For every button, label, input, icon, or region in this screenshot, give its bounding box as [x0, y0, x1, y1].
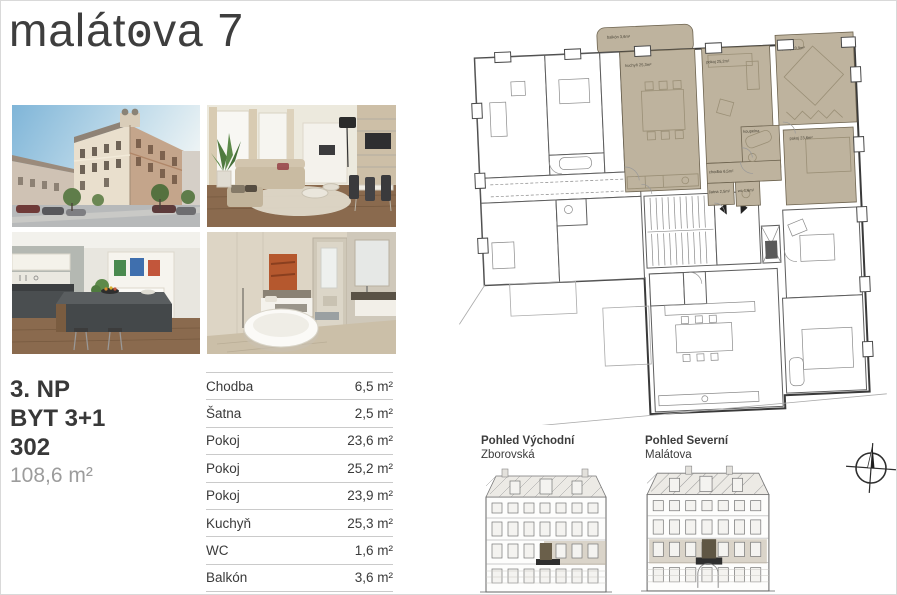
- floor-plan-drawing: balkón 3,6m²: [447, 5, 897, 425]
- photo-kitchen: [12, 232, 200, 354]
- bath-mat: [315, 312, 339, 320]
- living-room-illustration: [207, 105, 396, 227]
- unit-area: 108,6 m²: [10, 462, 105, 490]
- svg-text:koupelna: koupelna: [743, 128, 760, 134]
- plan-balcony-neighbour: [510, 281, 577, 316]
- coffee-table: [302, 188, 328, 198]
- street: [12, 205, 200, 227]
- table-row: Kuchyň25,3 m²: [206, 509, 393, 536]
- floor-plan: balkón 3,6m²: [447, 5, 897, 427]
- svg-text:pokoj 25,2m²: pokoj 25,2m²: [706, 58, 730, 64]
- room-table: Chodba6,5 m² Šatna2,5 m² Pokoj23,6 m² Po…: [206, 372, 393, 592]
- plan-highlighted-flat: kuchyň 25,3m² pokoj 25,2m² pokoj 23,9m² …: [619, 32, 860, 212]
- kitchen-illustration: [12, 232, 200, 354]
- plan-balcony-neighbour2: [603, 306, 651, 366]
- artworks: [114, 258, 160, 276]
- photo-living-room: [207, 105, 396, 227]
- island: [56, 286, 172, 332]
- tv: [365, 133, 391, 149]
- elevation-north-label: Pohled Severní Malátova: [645, 434, 728, 462]
- svg-text:wc 1,6m²: wc 1,6m²: [738, 187, 755, 193]
- building-exterior-illustration: [12, 105, 200, 227]
- svg-text:pokoj 23,6m²: pokoj 23,6m²: [789, 135, 813, 141]
- svg-text:balkón 3,6m²: balkón 3,6m²: [607, 34, 631, 40]
- bathroom-illustration: [207, 232, 396, 354]
- table-row: Pokoj25,2 m²: [206, 454, 393, 481]
- photo-building-exterior: [12, 105, 200, 227]
- page-title: malátova 7: [9, 1, 244, 59]
- elevation-east-drawing: [479, 463, 613, 595]
- unit-number: 302: [10, 433, 105, 462]
- table-row: Pokoj23,6 m²: [206, 427, 393, 454]
- logo-dot: [136, 31, 143, 38]
- plan-staircase: [644, 193, 717, 268]
- brochure-page: malátova 7: [0, 0, 897, 595]
- unit-layout: BYT 3+1: [10, 404, 105, 433]
- svg-text:šatna 2,5m²: šatna 2,5m²: [709, 188, 731, 194]
- elevation-east-label: Pohled Východní Zborovská: [481, 434, 574, 462]
- table-row: Balkón3,6 m²: [206, 564, 393, 591]
- unit-info: 3. NP BYT 3+1 302 108,6 m²: [10, 375, 105, 490]
- table-row: Chodba6,5 m²: [206, 372, 393, 399]
- table-row: WC1,6 m²: [206, 536, 393, 563]
- photo-bathroom: [207, 232, 396, 354]
- table-row: Pokoj23,9 m²: [206, 482, 393, 509]
- compass-icon: [844, 438, 897, 496]
- artwork: [269, 254, 297, 290]
- table-row: Šatna2,5 m²: [206, 399, 393, 426]
- unit-floor: 3. NP: [10, 375, 105, 404]
- elevation-north-drawing: [641, 459, 775, 595]
